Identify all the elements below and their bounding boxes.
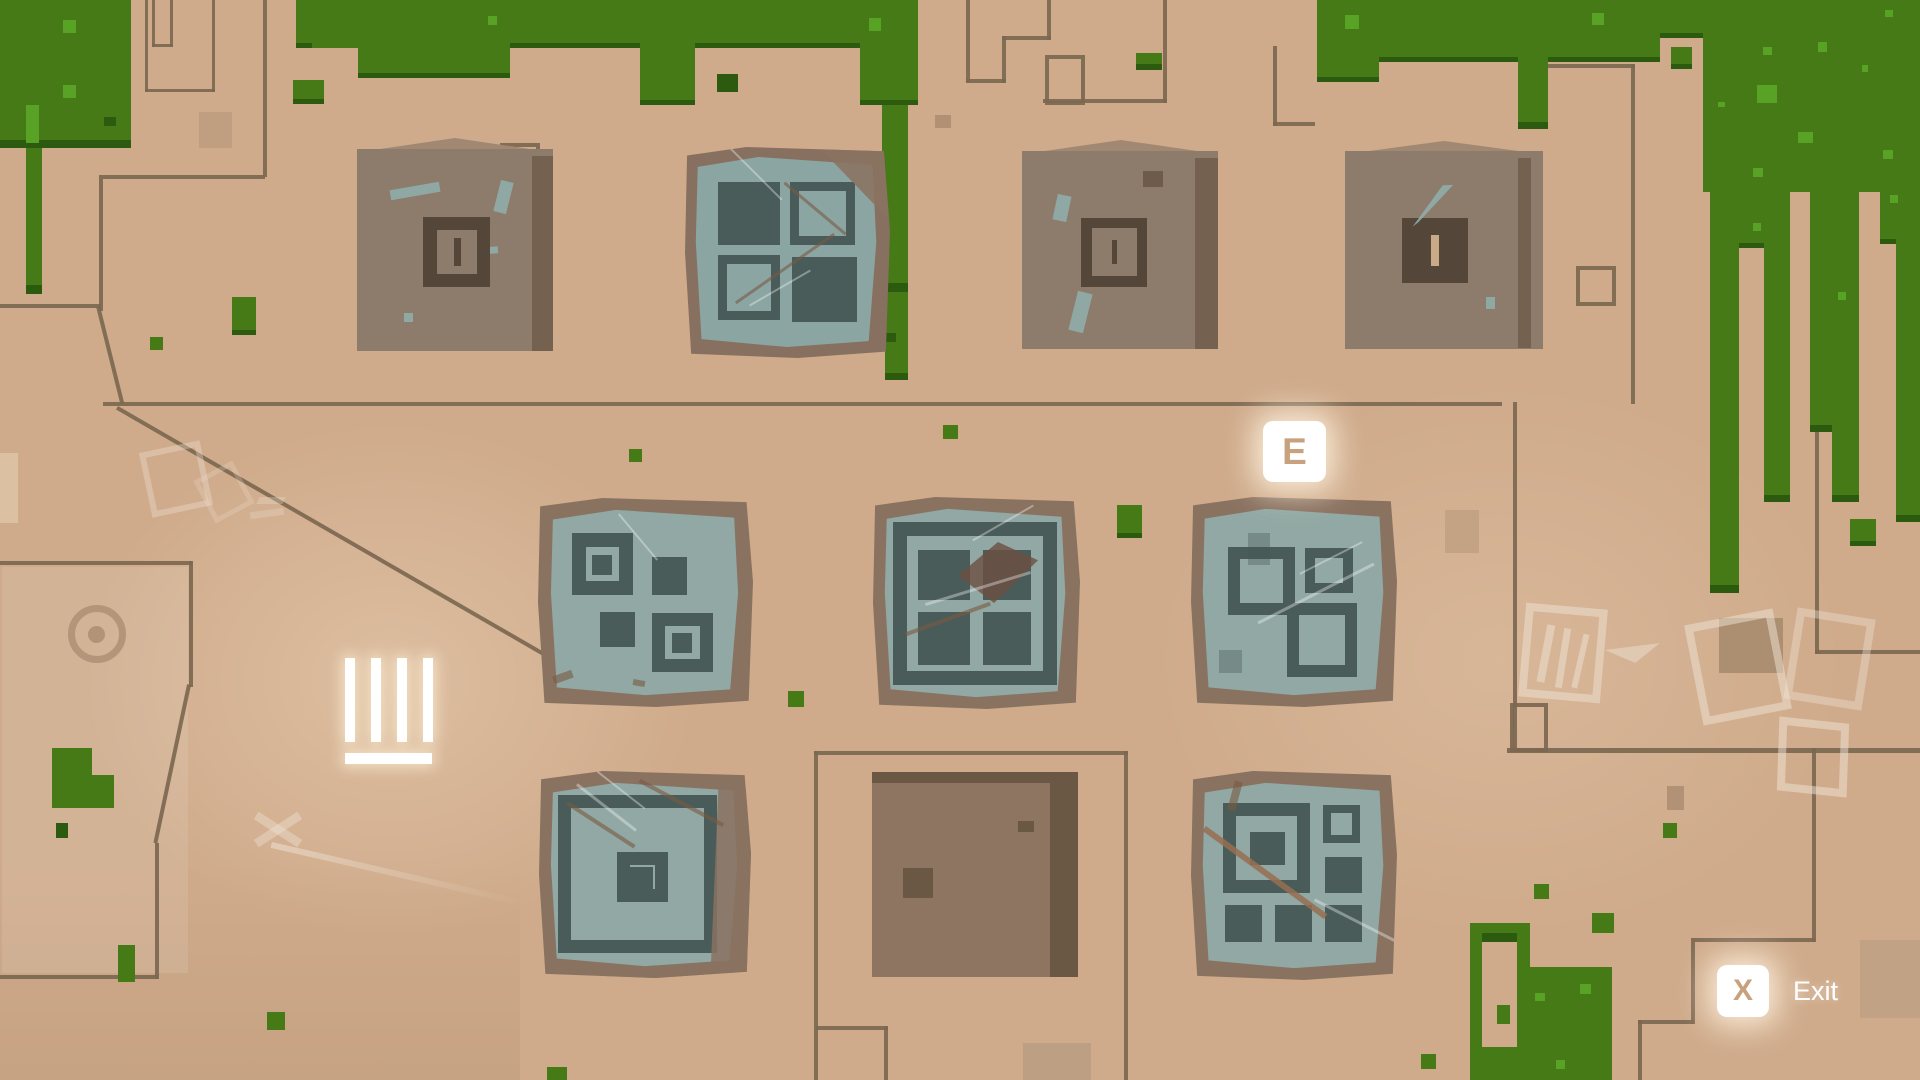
panel-square-solid (1275, 905, 1312, 942)
grass-shadow (296, 43, 312, 48)
grass-tuft (1757, 85, 1777, 103)
building-plaque (1402, 218, 1468, 283)
debris-shard (404, 313, 413, 322)
grass-shadow (1671, 64, 1692, 69)
grass-hole (1482, 933, 1517, 1047)
plot-outline (1576, 266, 1616, 306)
grass-patch (1703, 0, 1920, 192)
panel-square-frame (1287, 603, 1357, 677)
grass-tuft (1862, 65, 1868, 72)
grass-tuft (1556, 1060, 1565, 1069)
grass-patch (52, 748, 92, 808)
grass-tuft (1345, 15, 1359, 29)
panel-square-frame (718, 255, 780, 320)
plot-mark (1018, 821, 1034, 832)
grass-tuft (1838, 292, 1846, 300)
plot-outline (816, 1026, 888, 1030)
grass-drip (1832, 192, 1859, 495)
grass-shadow (232, 330, 256, 335)
grass-drip (1710, 192, 1739, 585)
puzzle-panel-bottom-left[interactable] (539, 771, 751, 978)
road-line (0, 561, 192, 565)
grass-tuft (1497, 1005, 1510, 1024)
grass-patch (640, 48, 695, 105)
grass-tuft (943, 425, 958, 439)
debris-shard (390, 182, 441, 201)
grass-shadow (1518, 122, 1548, 129)
grass-shadow (1810, 425, 1832, 432)
grass-tuft (547, 1067, 567, 1080)
plot-outline (814, 751, 818, 1080)
grass-patch (1518, 0, 1548, 122)
grass-tuft (1592, 13, 1604, 25)
panel-square-solid (792, 257, 857, 322)
grass-tuft (1818, 42, 1827, 52)
decor-streak (271, 842, 526, 906)
plot-shadow (872, 772, 1078, 783)
road-line (1273, 122, 1315, 126)
grass-patch (232, 297, 256, 330)
interact-key-letter: E (1282, 431, 1307, 473)
grass-shadow (26, 285, 42, 294)
decor-square-outline (1777, 716, 1849, 797)
ground-patch (1667, 786, 1684, 810)
grass-tuft (63, 20, 76, 33)
grass-tuft (1580, 984, 1591, 994)
decor-square-outline (1684, 608, 1792, 725)
decor-slash (1536, 624, 1555, 682)
grass-tuft (118, 945, 135, 982)
grass-tuft (788, 691, 804, 707)
puzzle-panel-bottom-right[interactable] (1191, 771, 1397, 980)
panel-square-target (652, 613, 713, 672)
decor-slash (1571, 634, 1589, 689)
road-line (189, 561, 193, 687)
road-line (1694, 938, 1815, 942)
grass-shadow (1317, 77, 1379, 82)
panel-square-target (572, 533, 633, 595)
grass-shadow (1896, 515, 1920, 522)
ground-patch (1023, 1043, 1091, 1080)
exit-label-text: Exit (1793, 976, 1838, 1007)
grass-tuft (1890, 195, 1898, 203)
road-line (152, 0, 155, 47)
plot-outline (884, 1026, 888, 1080)
ground-patch (0, 453, 18, 523)
road-line (155, 843, 159, 979)
exit-key-letter: X (1733, 974, 1753, 1008)
building-shadow (1195, 158, 1218, 349)
grass-tuft (56, 823, 68, 838)
road-line (99, 175, 103, 311)
grass-drip (1810, 192, 1832, 425)
panel-window (893, 522, 1057, 685)
decor-circle-dot (88, 626, 105, 643)
plaque-numeral-bars (1092, 228, 1137, 276)
grass-shadow (1136, 64, 1162, 70)
plot-mark (903, 868, 933, 898)
road-line (103, 175, 265, 179)
grass-tuft (1753, 168, 1763, 177)
grass-tuft (1592, 913, 1614, 933)
grass-patch (92, 775, 114, 808)
plaque-numeral-bars (437, 230, 477, 274)
grass-tuft (869, 18, 881, 31)
grass-shadow (640, 100, 695, 105)
panel-square-target (617, 852, 668, 902)
grass-patch (1317, 0, 1660, 62)
road-line (1540, 64, 1635, 68)
road-line (1631, 64, 1635, 404)
road-line (1163, 0, 1167, 103)
road-line (212, 0, 215, 92)
grass-shadow (510, 43, 640, 48)
road-line (145, 0, 148, 92)
grass-shadow (1880, 239, 1896, 244)
grass-shadow (1379, 57, 1518, 62)
debris-shard (493, 180, 513, 214)
grass-drip (1739, 192, 1764, 243)
grass-tuft (1421, 1054, 1436, 1069)
grass-patch (860, 48, 918, 105)
road-line (1002, 36, 1051, 40)
grass-tuft (717, 74, 738, 92)
plot-shadow (1050, 772, 1078, 977)
tally-base-line (345, 753, 432, 764)
grass-patch (296, 0, 918, 48)
grass-patch (1117, 505, 1142, 533)
building-ii[interactable] (1345, 151, 1543, 349)
panel-square-solid (1325, 905, 1362, 942)
shade-square (1219, 650, 1242, 673)
puzzle-panel-mid-right[interactable] (1191, 497, 1397, 707)
road-line (966, 0, 970, 82)
grass-shadow (1764, 495, 1790, 502)
panel-square-solid (652, 557, 687, 595)
grass-tuft (1535, 993, 1545, 1001)
grass-shadow (695, 43, 860, 48)
grass-patch (1530, 967, 1612, 1080)
grass-tuft (1883, 150, 1893, 159)
plaque-inner (437, 230, 477, 274)
plot-outline (1510, 703, 1548, 752)
grass-patch (1850, 519, 1876, 541)
tally-marks (345, 658, 445, 742)
grass-shadow (293, 99, 324, 104)
grass-drip (1896, 192, 1920, 515)
decor-square-outline (1518, 603, 1608, 704)
road-line (966, 79, 1006, 83)
grass-tuft (104, 117, 116, 126)
grass-tuft (629, 449, 642, 462)
shade-square (1248, 533, 1270, 565)
building-plot (872, 772, 1078, 977)
road-line (170, 0, 173, 47)
grass-tuft (150, 337, 163, 350)
target-center (592, 555, 612, 575)
panel-square-solid (1225, 905, 1262, 942)
puzzle-panel-mid-left[interactable] (538, 498, 753, 707)
ground-patch (199, 112, 232, 148)
road-line (1273, 46, 1277, 126)
decor-slash (1555, 628, 1571, 688)
road-line (1513, 402, 1517, 752)
road-line (1638, 1020, 1642, 1080)
grass-tuft (1885, 10, 1893, 17)
interact-key-prompt[interactable]: E (1263, 421, 1326, 482)
grass-shadow (885, 373, 908, 380)
road-line (1691, 938, 1695, 1024)
decor-dart (1605, 643, 1660, 663)
building-shadow (532, 156, 553, 351)
grass-shadow (1482, 933, 1517, 942)
building-i[interactable] (357, 149, 553, 351)
grass-tuft (267, 1012, 285, 1030)
building-iii[interactable] (1022, 151, 1218, 349)
grass-patch (293, 80, 324, 99)
tree-trunk (26, 148, 42, 293)
road-line (1002, 36, 1006, 83)
plaque-numeral-bars (1402, 218, 1468, 283)
road-line (103, 402, 1502, 406)
ground-patch (935, 115, 951, 128)
road-line (145, 89, 215, 92)
grass-shadow (1117, 533, 1142, 538)
grass-tuft (26, 105, 39, 143)
panel-square-solid (600, 612, 635, 647)
building-plaque (423, 217, 490, 287)
exit-key-prompt[interactable]: X (1717, 965, 1769, 1017)
debris-shard (1052, 194, 1071, 222)
target-center (630, 867, 653, 890)
target-center (1250, 832, 1285, 865)
panel-square-frame (1323, 805, 1360, 843)
building-shadow (1518, 158, 1531, 348)
grass-shadow (358, 73, 510, 78)
plaque-inner (1092, 228, 1137, 276)
grass-shadow (1850, 541, 1876, 546)
target-center (672, 633, 692, 653)
plot-outline (1045, 55, 1085, 105)
grass-tuft (1753, 223, 1761, 231)
window-pane (983, 612, 1031, 665)
game-map: E X Exit (0, 0, 1920, 1080)
debris-shard (1068, 291, 1092, 333)
exit-label[interactable]: Exit (1793, 965, 1913, 1017)
grass-shadow (1660, 33, 1703, 38)
grass-tuft (1534, 884, 1549, 899)
grass-tuft (1663, 823, 1677, 838)
road-line (96, 306, 124, 404)
grass-shadow (1548, 57, 1660, 62)
debris-shard (1486, 297, 1495, 309)
grass-tuft (1718, 102, 1725, 107)
grass-shadow (1710, 585, 1739, 593)
debris-shard (1143, 171, 1163, 187)
decor-square-outline (1783, 607, 1875, 710)
plot-outline (814, 751, 1128, 755)
grass-tuft (1763, 47, 1772, 55)
grass-drip (1764, 192, 1790, 495)
road-line (1047, 0, 1051, 40)
ground-patch (1445, 510, 1479, 553)
road-line (1043, 99, 1167, 103)
grass-tuft (63, 85, 76, 98)
decor-mark (256, 497, 285, 504)
grass-tuft (488, 16, 497, 25)
puzzle-panel-top[interactable] (685, 147, 890, 358)
grass-tuft (1798, 132, 1813, 143)
panel-square-solid (1325, 857, 1362, 893)
grass-shadow (1739, 243, 1764, 248)
grass-shadow (1832, 495, 1859, 502)
decor-mark (250, 508, 285, 520)
puzzle-panel-mid-center[interactable] (873, 497, 1080, 709)
building-plaque (1081, 218, 1147, 287)
grass-shadow (0, 140, 131, 148)
road-line (1507, 748, 1920, 753)
road-line (1638, 1020, 1694, 1024)
road-line (263, 0, 267, 177)
road-line (0, 304, 101, 308)
panel-square-solid (718, 182, 780, 245)
plot-outline (1124, 751, 1128, 1080)
grass-patch (1671, 47, 1692, 64)
